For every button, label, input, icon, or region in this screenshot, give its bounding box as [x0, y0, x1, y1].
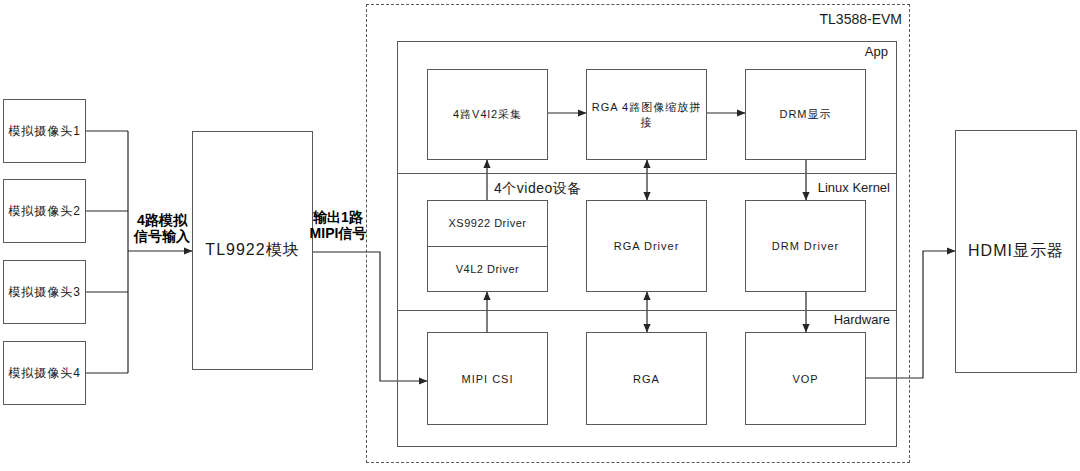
drm-driver-box: DRM Driver: [745, 200, 866, 292]
vop-box: VOP: [745, 332, 866, 425]
xs9922-driver-box: XS9922 Driver: [428, 201, 547, 247]
v4l2-driver-label: V4L2 Driver: [456, 263, 520, 275]
mipi-csi-label: MIPI CSI: [461, 373, 513, 385]
analog-camera-box-4: 模拟摄像头4: [3, 341, 86, 405]
rga-hardware-label: RGA: [633, 373, 660, 385]
drm-display-label: DRM显示: [779, 107, 831, 122]
v4l2-capture-box: 4路V4l2采集: [427, 69, 548, 160]
drm-display-box: DRM显示: [745, 69, 866, 160]
analog-camera-label: 模拟摄像头4: [8, 365, 81, 382]
layer-label-linux-kernel: Linux Kernel: [788, 180, 890, 195]
rga-scale-stitch-box: RGA 4路图像缩放拼接: [586, 69, 707, 160]
tl9922-module-box: TL9922模块: [192, 131, 313, 370]
layer-label-hardware: Hardware: [788, 312, 890, 327]
rga-driver-box: RGA Driver: [586, 200, 707, 292]
rga-driver-label: RGA Driver: [614, 240, 680, 252]
mipi-output-label-line2: MIPI信号: [306, 225, 370, 241]
analog-camera-box-1: 模拟摄像头1: [3, 99, 86, 163]
diagram-canvas: 模拟摄像头1 模拟摄像头2 模拟摄像头3 模拟摄像头4 4路模拟 信号输入 TL…: [0, 0, 1080, 471]
mipi-output-label: 输出1路 MIPI信号: [306, 209, 370, 241]
rga-scale-stitch-label: RGA 4路图像缩放拼接: [587, 100, 706, 130]
analog-camera-box-3: 模拟摄像头3: [3, 260, 86, 324]
v4l2-capture-label: 4路V4l2采集: [453, 107, 522, 122]
analog-input-label-line1: 4路模拟: [128, 212, 196, 228]
layer-label-app: App: [838, 44, 888, 59]
mipi-csi-box: MIPI CSI: [427, 332, 548, 425]
analog-camera-box-2: 模拟摄像头2: [3, 179, 86, 243]
analog-input-label: 4路模拟 信号输入: [128, 212, 196, 244]
hdmi-display-box: HDMI显示器: [955, 130, 1077, 373]
analog-camera-label: 模拟摄像头3: [8, 284, 81, 301]
analog-camera-label: 模拟摄像头2: [8, 203, 81, 220]
drm-driver-label: DRM Driver: [772, 240, 839, 252]
xs9922-driver-label: XS9922 Driver: [448, 217, 526, 229]
analog-camera-label: 模拟摄像头1: [8, 123, 81, 140]
v4l2-driver-box: V4L2 Driver: [428, 247, 547, 292]
video-devices-label: 4个video设备: [494, 180, 582, 198]
rga-hardware-box: RGA: [586, 332, 707, 425]
analog-input-label-line2: 信号输入: [128, 228, 196, 244]
sensor-driver-stack: XS9922 Driver V4L2 Driver: [427, 200, 548, 292]
divider-kernel-hardware: [397, 310, 897, 311]
hdmi-display-label: HDMI显示器: [968, 241, 1064, 262]
mipi-output-label-line1: 输出1路: [306, 209, 370, 225]
tl9922-module-label: TL9922模块: [205, 240, 299, 261]
vop-label: VOP: [792, 373, 818, 385]
evm-title: TL3588-EVM: [790, 11, 902, 27]
divider-app-kernel: [397, 173, 897, 174]
